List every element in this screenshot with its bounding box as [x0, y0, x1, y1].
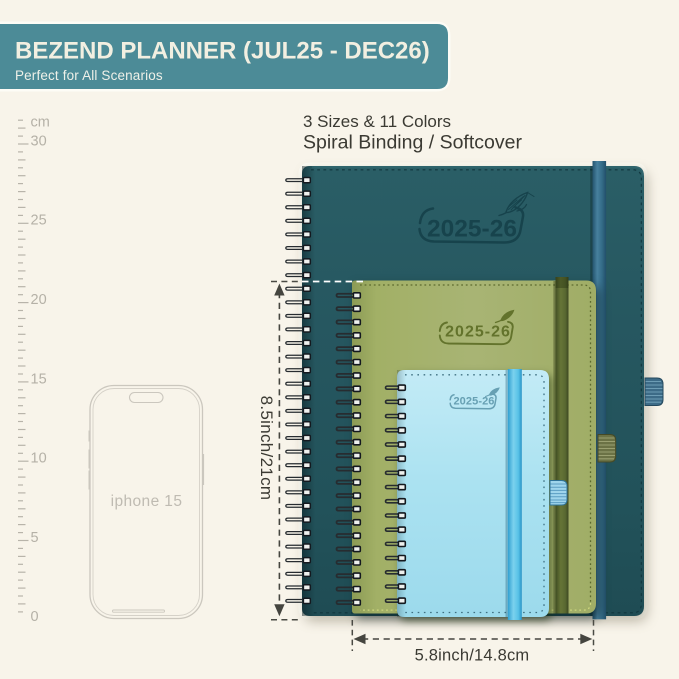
svg-text:25: 25 [31, 213, 47, 229]
svg-text:8.5inch/21cm: 8.5inch/21cm [257, 396, 276, 501]
svg-text:2025-26: 2025-26 [453, 395, 494, 407]
svg-text:BEZEND PLANNER (JUL25 - DEC26): BEZEND PLANNER (JUL25 - DEC26) [15, 38, 430, 65]
svg-text:15: 15 [31, 371, 47, 387]
svg-text:3 Sizes & 11 Colors: 3 Sizes & 11 Colors [303, 112, 451, 131]
svg-text:2025-26: 2025-26 [445, 324, 511, 341]
svg-text:0: 0 [31, 609, 39, 625]
svg-text:Perfect for All Scenarios: Perfect for All Scenarios [15, 68, 163, 83]
svg-text:2025-26: 2025-26 [427, 216, 517, 243]
svg-text:cm: cm [31, 115, 50, 131]
svg-text:5: 5 [31, 530, 39, 546]
svg-text:10: 10 [31, 451, 47, 467]
svg-text:Spiral Binding / Softcover: Spiral Binding / Softcover [303, 132, 522, 154]
svg-text:30: 30 [31, 133, 47, 149]
svg-text:20: 20 [31, 292, 47, 308]
svg-text:5.8inch/14.8cm: 5.8inch/14.8cm [415, 647, 530, 665]
svg-text:iphone 15: iphone 15 [111, 493, 183, 510]
